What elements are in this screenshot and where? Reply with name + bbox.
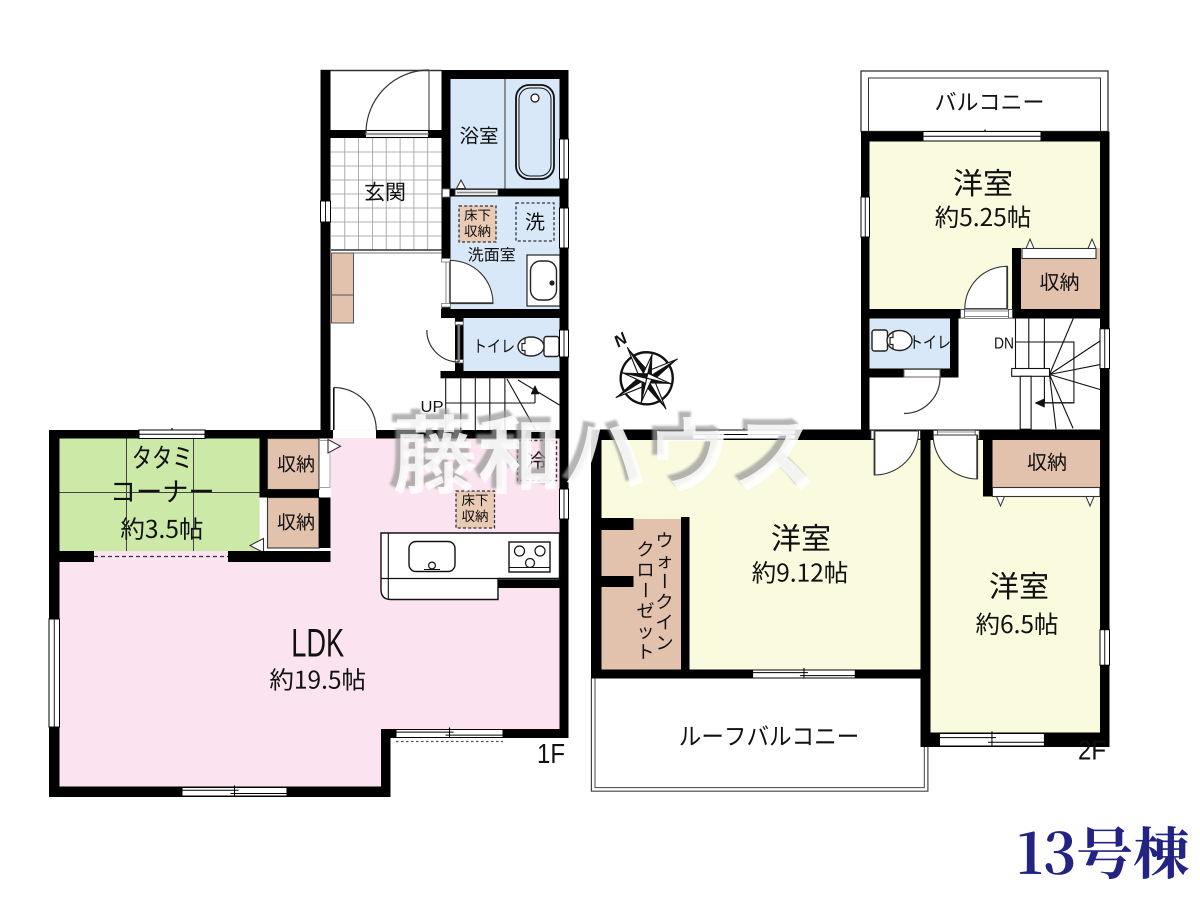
svg-text:LDK: LDK (291, 622, 344, 666)
svg-text:1F: 1F (537, 738, 565, 769)
svg-text:DN: DN (994, 336, 1014, 353)
svg-text:2F: 2F (1078, 735, 1106, 766)
